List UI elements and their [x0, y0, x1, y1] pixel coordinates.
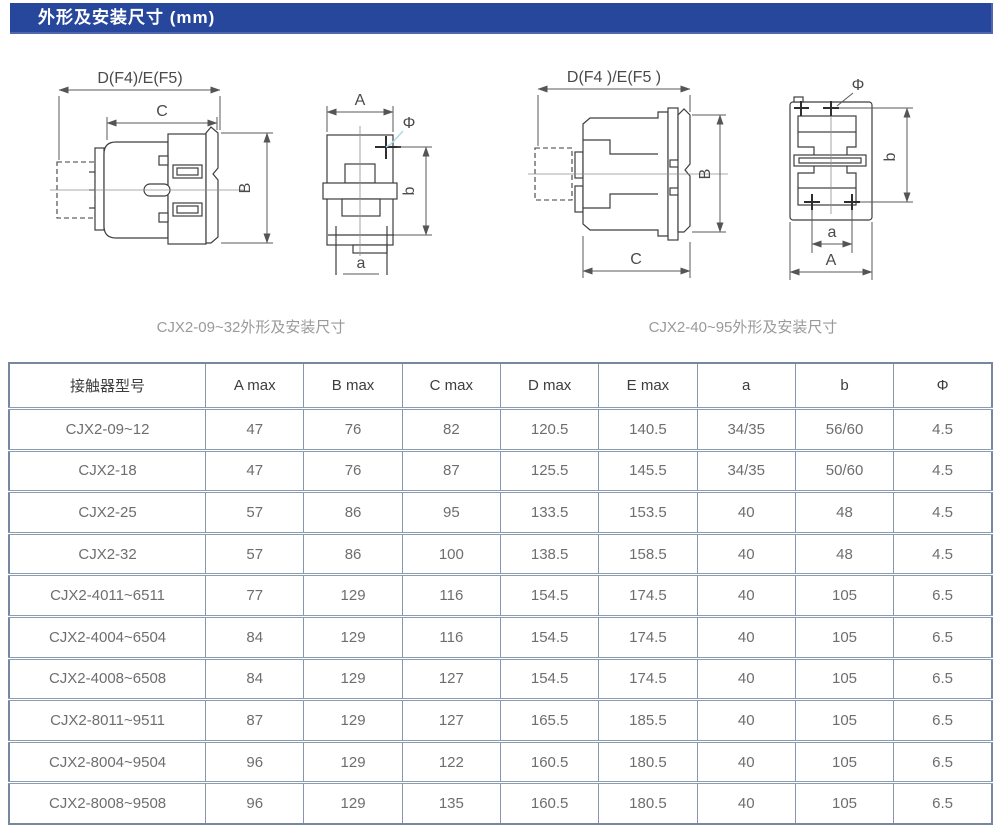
value-cell: 40 — [697, 741, 795, 783]
value-cell: 129 — [304, 741, 402, 783]
value-cell: 127 — [402, 658, 500, 700]
value-cell: 105 — [795, 783, 893, 824]
column-header: a — [697, 363, 795, 409]
value-cell: 6.5 — [894, 741, 992, 783]
dimensions-table: 接触器型号A maxB maxC maxD maxE maxabΦ CJX2-0… — [8, 362, 993, 825]
value-cell: 180.5 — [599, 741, 697, 783]
value-cell: 77 — [206, 575, 304, 617]
datasheet-page: 外形及安装尺寸 (mm) — [0, 0, 1000, 829]
model-cell: CJX2-18 — [9, 450, 206, 492]
value-cell: 87 — [206, 700, 304, 742]
value-cell: 154.5 — [500, 616, 598, 658]
table-row: CJX2-325786100138.5158.540484.5 — [9, 533, 992, 575]
value-cell: 4.5 — [894, 450, 992, 492]
model-cell: CJX2-8008~9508 — [9, 783, 206, 824]
dim-label-b: b — [882, 152, 899, 161]
value-cell: 129 — [304, 658, 402, 700]
value-cell: 100 — [402, 533, 500, 575]
table-row: CJX2-8011~951187129127165.5185.5401056.5 — [9, 700, 992, 742]
dim-label-a: a — [357, 255, 366, 272]
value-cell: 6.5 — [894, 783, 992, 824]
value-cell: 40 — [697, 700, 795, 742]
value-cell: 174.5 — [599, 616, 697, 658]
table-row: CJX2-4004~650484129116154.5174.5401056.5 — [9, 616, 992, 658]
value-cell: 125.5 — [500, 450, 598, 492]
value-cell: 145.5 — [599, 450, 697, 492]
table-row: CJX2-4011~651177129116154.5174.5401056.5 — [9, 575, 992, 617]
value-cell: 153.5 — [599, 492, 697, 534]
value-cell: 174.5 — [599, 575, 697, 617]
table-row: CJX2-18477687125.5145.534/3550/604.5 — [9, 450, 992, 492]
model-cell: CJX2-32 — [9, 533, 206, 575]
value-cell: 105 — [795, 741, 893, 783]
value-cell: 84 — [206, 616, 304, 658]
value-cell: 160.5 — [500, 783, 598, 824]
value-cell: 158.5 — [599, 533, 697, 575]
value-cell: 95 — [402, 492, 500, 534]
table-row: CJX2-25578695133.5153.540484.5 — [9, 492, 992, 534]
value-cell: 57 — [206, 492, 304, 534]
value-cell: 48 — [795, 492, 893, 534]
value-cell: 82 — [402, 409, 500, 451]
dim-label-phi: Φ — [852, 77, 865, 94]
value-cell: 76 — [304, 409, 402, 451]
figure-cjx2-40-95-drawing: D(F4 )/E(F5 ) B C Φ b a A — [520, 60, 980, 310]
value-cell: 40 — [697, 575, 795, 617]
table-row: CJX2-4008~650884129127154.5174.5401056.5 — [9, 658, 992, 700]
model-cell: CJX2-09~12 — [9, 409, 206, 451]
dim-label-A: A — [355, 92, 366, 109]
value-cell: 86 — [304, 533, 402, 575]
value-cell: 133.5 — [500, 492, 598, 534]
value-cell: 40 — [697, 492, 795, 534]
value-cell: 105 — [795, 575, 893, 617]
value-cell: 127 — [402, 700, 500, 742]
column-header: E max — [599, 363, 697, 409]
value-cell: 174.5 — [599, 658, 697, 700]
value-cell: 56/60 — [795, 409, 893, 451]
column-header: B max — [304, 363, 402, 409]
dim-label-B: B — [697, 169, 714, 180]
value-cell: 105 — [795, 616, 893, 658]
value-cell: 129 — [304, 700, 402, 742]
dim-label-a: a — [828, 224, 837, 241]
value-cell: 185.5 — [599, 700, 697, 742]
value-cell: 160.5 — [500, 741, 598, 783]
value-cell: 6.5 — [894, 658, 992, 700]
value-cell: 40 — [697, 658, 795, 700]
value-cell: 105 — [795, 658, 893, 700]
value-cell: 40 — [697, 616, 795, 658]
model-cell: CJX2-25 — [9, 492, 206, 534]
value-cell: 116 — [402, 575, 500, 617]
column-header: b — [795, 363, 893, 409]
table-row: CJX2-09~12477682120.5140.534/3556/604.5 — [9, 409, 992, 451]
value-cell: 165.5 — [500, 700, 598, 742]
figure-left-caption: CJX2-09~32外形及安装尺寸 — [101, 316, 401, 337]
dim-label-d: D(F4)/E(F5) — [97, 70, 182, 87]
value-cell: 122 — [402, 741, 500, 783]
value-cell: 96 — [206, 783, 304, 824]
model-cell: CJX2-4011~6511 — [9, 575, 206, 617]
section-title-bar: 外形及安装尺寸 (mm) — [10, 3, 993, 34]
value-cell: 129 — [304, 616, 402, 658]
value-cell: 4.5 — [894, 533, 992, 575]
value-cell: 6.5 — [894, 575, 992, 617]
value-cell: 76 — [304, 450, 402, 492]
value-cell: 129 — [304, 783, 402, 824]
value-cell: 87 — [402, 450, 500, 492]
dim-label-c: C — [630, 251, 642, 268]
value-cell: 96 — [206, 741, 304, 783]
column-header: 接触器型号 — [9, 363, 206, 409]
figure-right-caption: CJX2-40~95外形及安装尺寸 — [593, 316, 893, 337]
value-cell: 40 — [697, 783, 795, 824]
column-header: D max — [500, 363, 598, 409]
column-header: Φ — [894, 363, 992, 409]
value-cell: 57 — [206, 533, 304, 575]
value-cell: 48 — [795, 533, 893, 575]
table-body: CJX2-09~12477682120.5140.534/3556/604.5C… — [9, 409, 992, 824]
table-header: 接触器型号A maxB maxC maxD maxE maxabΦ — [9, 363, 992, 409]
value-cell: 47 — [206, 450, 304, 492]
column-header: C max — [402, 363, 500, 409]
value-cell: 140.5 — [599, 409, 697, 451]
value-cell: 6.5 — [894, 700, 992, 742]
value-cell: 4.5 — [894, 492, 992, 534]
dim-label-b: b — [401, 186, 418, 195]
table-header-row: 接触器型号A maxB maxC maxD maxE maxabΦ — [9, 363, 992, 409]
model-cell: CJX2-4008~6508 — [9, 658, 206, 700]
value-cell: 154.5 — [500, 658, 598, 700]
value-cell: 180.5 — [599, 783, 697, 824]
value-cell: 40 — [697, 533, 795, 575]
dim-label-A: A — [826, 252, 837, 269]
value-cell: 138.5 — [500, 533, 598, 575]
dim-label-d: D(F4 )/E(F5 ) — [567, 69, 661, 86]
value-cell: 84 — [206, 658, 304, 700]
value-cell: 135 — [402, 783, 500, 824]
table-row: CJX2-8008~950896129135160.5180.5401056.5 — [9, 783, 992, 824]
section-title: 外形及安装尺寸 (mm) — [10, 3, 991, 32]
model-cell: CJX2-4004~6504 — [9, 616, 206, 658]
value-cell: 86 — [304, 492, 402, 534]
value-cell: 129 — [304, 575, 402, 617]
value-cell: 34/35 — [697, 450, 795, 492]
model-cell: CJX2-8011~9511 — [9, 700, 206, 742]
value-cell: 50/60 — [795, 450, 893, 492]
value-cell: 120.5 — [500, 409, 598, 451]
figure-cjx2-09-32-drawing: D(F4)/E(F5) C B A Φ b a — [40, 60, 480, 310]
value-cell: 154.5 — [500, 575, 598, 617]
dim-label-B: B — [237, 183, 254, 194]
value-cell: 34/35 — [697, 409, 795, 451]
column-header: A max — [206, 363, 304, 409]
value-cell: 6.5 — [894, 616, 992, 658]
value-cell: 47 — [206, 409, 304, 451]
dim-label-phi: Φ — [403, 115, 416, 132]
value-cell: 116 — [402, 616, 500, 658]
value-cell: 105 — [795, 700, 893, 742]
value-cell: 4.5 — [894, 409, 992, 451]
table-row: CJX2-8004~950496129122160.5180.5401056.5 — [9, 741, 992, 783]
model-cell: CJX2-8004~9504 — [9, 741, 206, 783]
dim-label-c: C — [156, 103, 168, 120]
